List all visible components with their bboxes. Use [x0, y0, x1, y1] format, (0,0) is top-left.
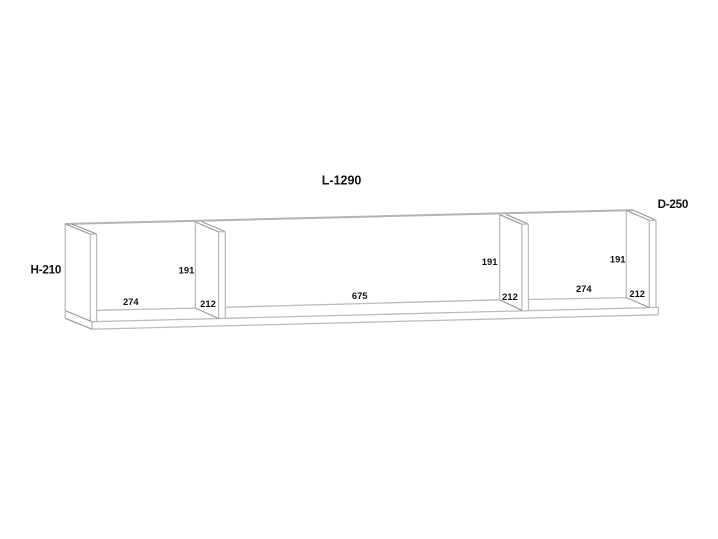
- svg-text:274: 274: [576, 283, 592, 294]
- svg-text:L-1290: L-1290: [322, 174, 362, 188]
- svg-text:D-250: D-250: [658, 198, 689, 211]
- svg-text:212: 212: [629, 288, 645, 299]
- svg-text:191: 191: [482, 256, 498, 267]
- svg-text:274: 274: [123, 296, 139, 307]
- svg-text:191: 191: [610, 254, 626, 265]
- svg-text:212: 212: [502, 291, 518, 302]
- svg-text:H-210: H-210: [31, 263, 62, 276]
- svg-text:191: 191: [179, 265, 195, 276]
- svg-text:675: 675: [352, 290, 368, 301]
- svg-text:212: 212: [200, 298, 216, 309]
